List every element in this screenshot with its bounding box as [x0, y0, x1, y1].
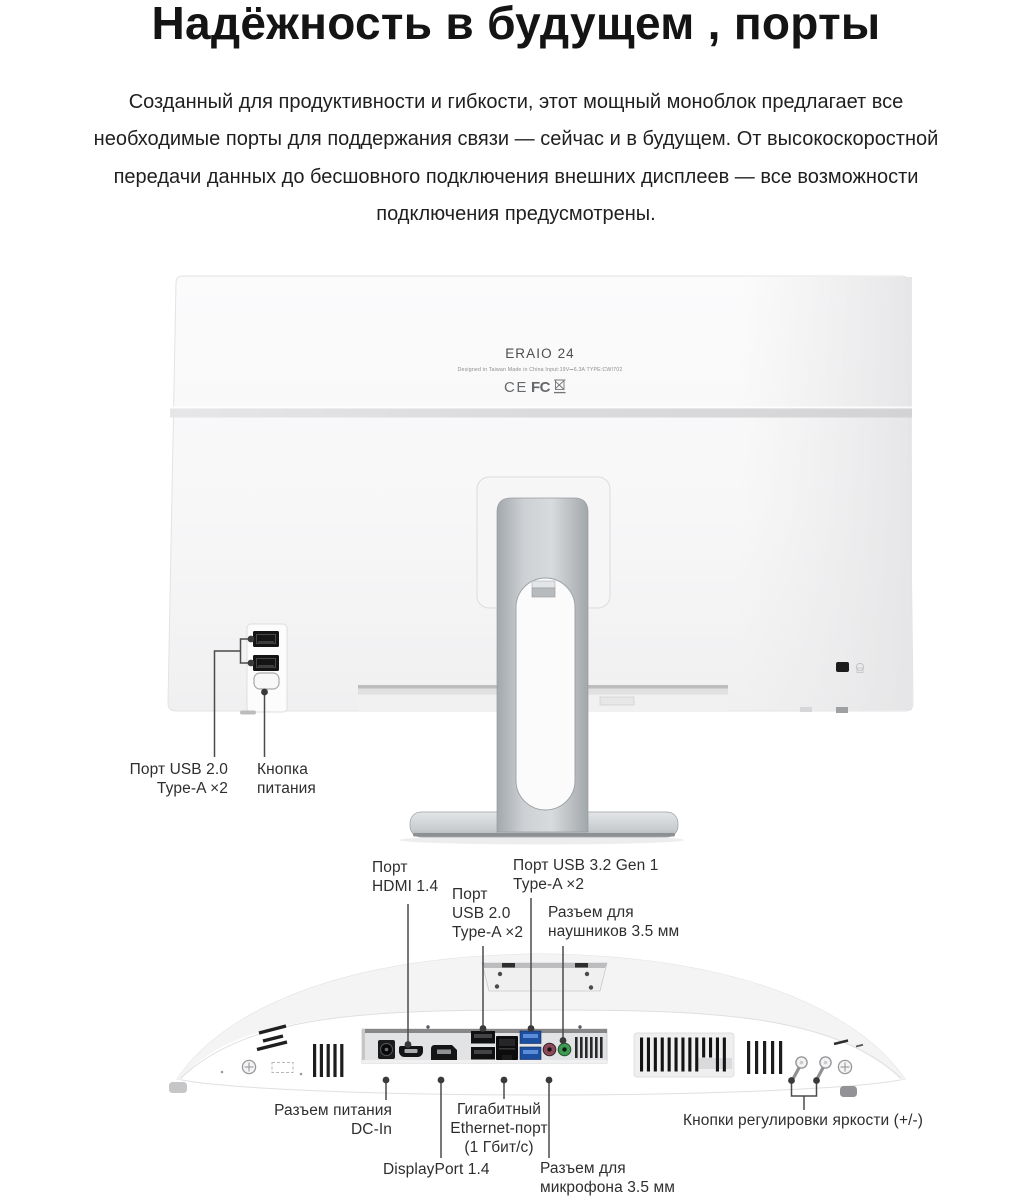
ethernet-label: Гигабитный Ethernet-порт (1 Гбит/с) — [444, 1101, 554, 1157]
usb-callout-dot-1 — [248, 636, 255, 643]
bottom-foot-right — [840, 1086, 857, 1097]
headphones-label-line1: Разъем для — [548, 904, 679, 923]
usb32-label: Порт USB 3.2 Gen 1 Type-A ×2 — [513, 857, 659, 895]
dc-in-port[interactable] — [378, 1040, 395, 1059]
tiny-dot — [221, 1071, 224, 1074]
power-label-line2: питания — [257, 780, 316, 799]
rear-panel-right-shade — [740, 277, 912, 710]
usb-rear-label: Порт USB 2.0 Type-A ×2 — [118, 761, 228, 799]
rear-divider-band — [170, 408, 912, 418]
dc-in-label-line1: Разъем питания — [272, 1102, 392, 1121]
microphone-label: Разъем для микрофона 3.5 мм — [540, 1160, 675, 1198]
headphones-label-line2: наушников 3.5 мм — [548, 923, 679, 942]
power-callout-dot — [261, 689, 268, 696]
hdmi-label-line1: Порт — [372, 859, 438, 878]
band-highlight — [170, 407, 912, 409]
ethernet-label-line3: (1 Гбит/с) — [444, 1139, 554, 1158]
usb32-label-line1: Порт USB 3.2 Gen 1 — [513, 857, 659, 876]
stand-latch — [532, 581, 555, 597]
tiny-dot — [300, 1073, 303, 1076]
model-label: ERAIO 24 — [505, 346, 575, 361]
product-page: Надёжность в будущем , порты Созданный д… — [0, 0, 1032, 1200]
base-rim — [413, 833, 675, 837]
product-illustration: ERAIO 24 Designed in Taiwan Made in Chin… — [0, 0, 1032, 1200]
rear-side-ports — [240, 624, 287, 715]
screw-dot — [578, 1025, 581, 1028]
main-vent-grille — [634, 1033, 734, 1077]
left-screw — [242, 1060, 255, 1073]
headphone-jack[interactable] — [558, 1043, 571, 1056]
usb2-port-rear-1 — [253, 631, 279, 647]
hdmi-label: Порт HDMI 1.4 — [372, 859, 438, 897]
usb2-port-rear-2 — [253, 655, 279, 671]
displayport-label-line1: DisplayPort 1.4 — [383, 1161, 490, 1180]
rear-foot — [240, 711, 256, 715]
power-label-line1: Кнопка — [257, 761, 316, 780]
stand-cutout — [516, 578, 575, 810]
dc-in-label: Разъем питания DC-In — [272, 1102, 392, 1140]
ethernet-port[interactable] — [496, 1036, 518, 1060]
headphones-label: Разъем для наушников 3.5 мм — [548, 904, 679, 942]
usb-rear-label-line1: Порт USB 2.0 — [118, 761, 228, 780]
power-button[interactable] — [254, 673, 279, 689]
ethernet-label-line2: Ethernet-порт — [444, 1120, 554, 1139]
usb20-label-line2: USB 2.0 — [452, 905, 523, 924]
displayport-port[interactable] — [431, 1045, 457, 1060]
screw-dot — [426, 1025, 429, 1028]
rear-edge-mark-1 — [800, 707, 812, 712]
fcc-mark: FC — [531, 379, 551, 396]
hdmi-port[interactable] — [399, 1046, 423, 1057]
ethernet-label-line1: Гигабитный — [444, 1101, 554, 1120]
power-button-label: Кнопка питания — [257, 761, 316, 799]
rear-edge-mark-2 — [836, 707, 848, 713]
microphone-label-line1: Разъем для — [540, 1160, 675, 1179]
usb-callout-dot-2 — [248, 660, 255, 667]
hdmi-label-line2: HDMI 1.4 — [372, 878, 438, 897]
rear-view: ERAIO 24 Designed in Taiwan Made in Chin… — [168, 276, 913, 845]
brightness-label-line1: Кнопки регулировки яркости (+/-) — [683, 1112, 923, 1131]
ce-mark: CE — [504, 379, 528, 396]
stand-mount-recess — [482, 963, 607, 991]
usb20-label-line3: Type-A ×2 — [452, 924, 523, 943]
microphone-jack[interactable] — [543, 1043, 556, 1056]
bottom-foot-left — [169, 1082, 187, 1093]
brightness-label: Кнопки регулировки яркости (+/-) — [683, 1112, 923, 1131]
regulatory-text: Designed in Taiwan Made in China Input:1… — [458, 367, 623, 373]
microphone-label-line2: микрофона 3.5 мм — [540, 1179, 675, 1198]
dc-in-label-line2: DC-In — [272, 1121, 392, 1140]
usb-rear-label-line2: Type-A ×2 — [118, 780, 228, 799]
usb32-label-line2: Type-A ×2 — [513, 876, 659, 895]
displayport-label: DisplayPort 1.4 — [383, 1161, 490, 1180]
right-screw — [838, 1060, 851, 1073]
